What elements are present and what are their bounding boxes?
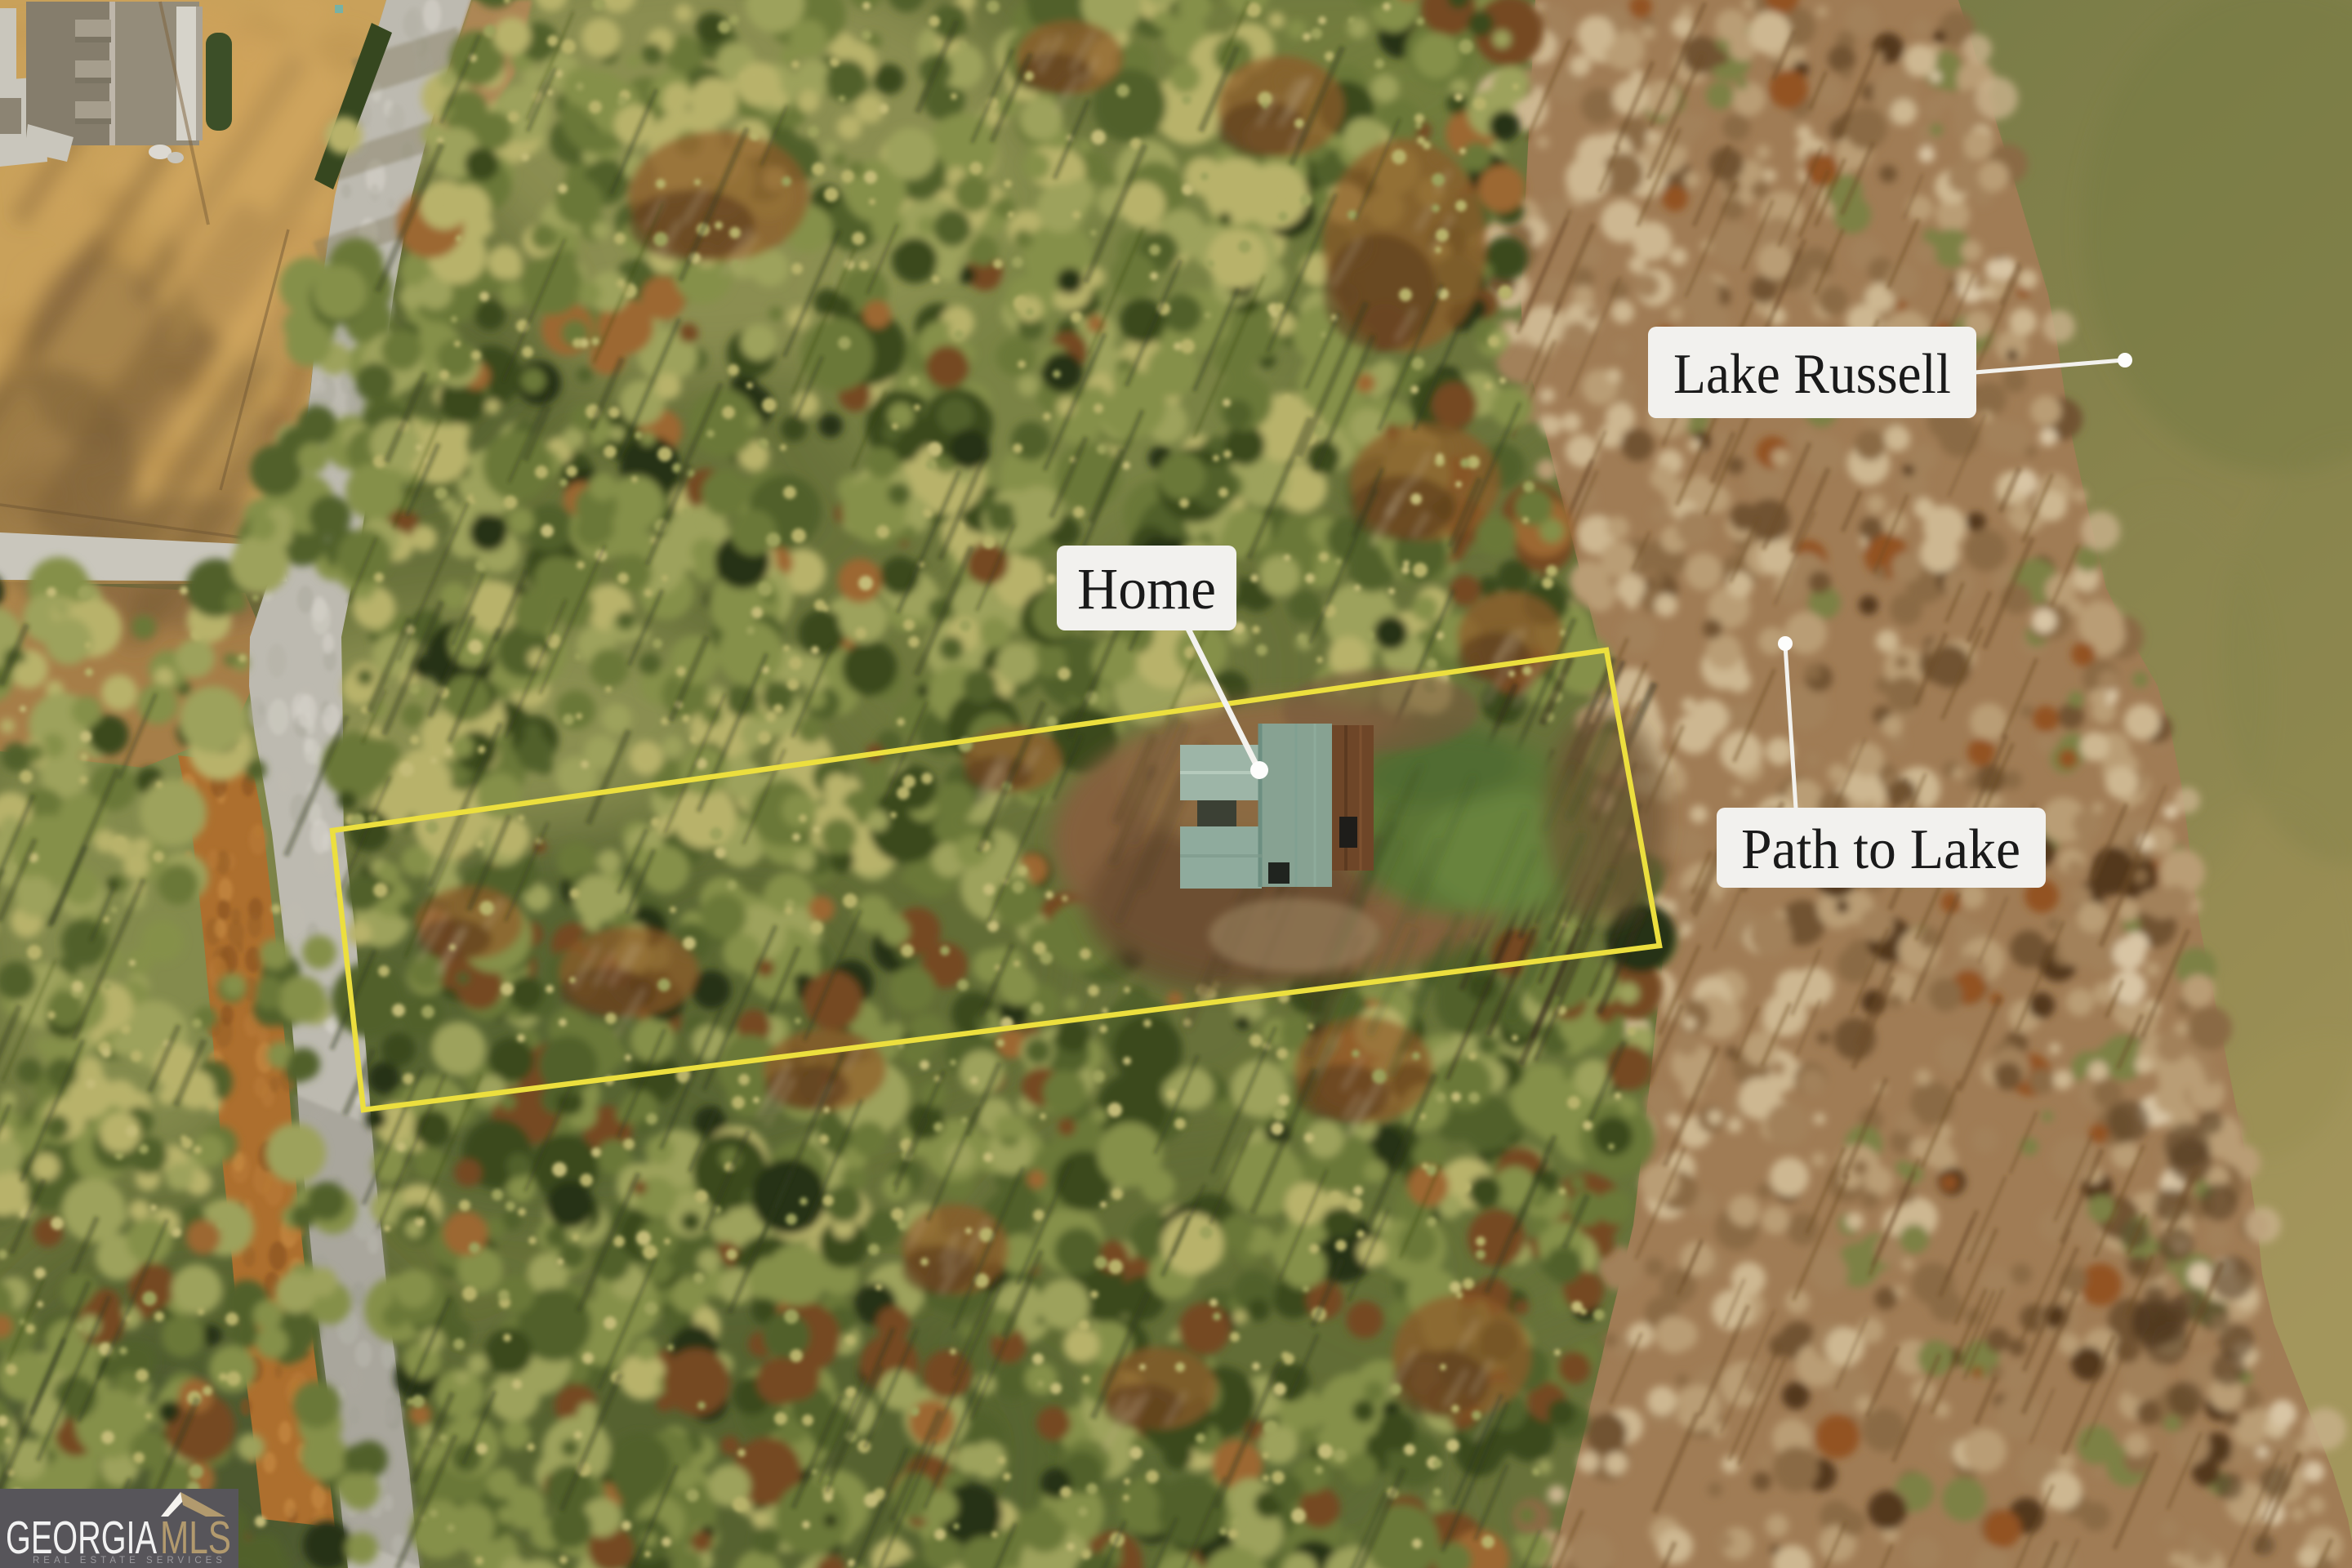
svg-text:REAL ESTATE SERVICES: REAL ESTATE SERVICES — [33, 1556, 226, 1566]
svg-text:Lake Russell: Lake Russell — [1673, 343, 1951, 406]
svg-text:Path to Lake: Path to Lake — [1741, 818, 2020, 881]
svg-text:Home: Home — [1077, 556, 1216, 621]
